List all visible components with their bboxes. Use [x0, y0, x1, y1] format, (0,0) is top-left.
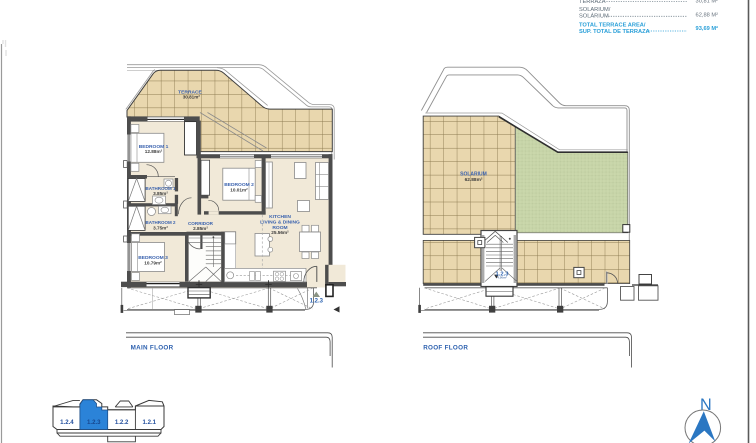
- svg-text:3.85m²: 3.85m²: [153, 191, 168, 196]
- svg-text:62,88 M²: 62,88 M²: [696, 13, 719, 19]
- svg-text:1.2.3: 1.2.3: [87, 419, 101, 426]
- svg-text:1.2.2: 1.2.2: [115, 419, 129, 426]
- svg-text:SOLARIUM/: SOLARIUM/: [579, 7, 611, 13]
- svg-text:1.2.1: 1.2.1: [143, 419, 157, 426]
- svg-text:30,81 M²: 30,81 M²: [696, 0, 719, 4]
- svg-text:3.75m²: 3.75m²: [153, 225, 168, 230]
- svg-text:62.88m²: 62.88m²: [465, 177, 483, 183]
- svg-text:SUP. TOTAL DE TERRAZA: SUP. TOTAL DE TERRAZA: [579, 29, 650, 35]
- svg-text:2.85m²: 2.85m²: [193, 226, 208, 231]
- svg-text:SOLÁRIUM: SOLÁRIUM: [579, 12, 609, 19]
- svg-text:30.81m²: 30.81m²: [183, 94, 201, 99]
- svg-text:25.56m²: 25.56m²: [271, 230, 289, 235]
- svg-text:MAIN FLOOR: MAIN FLOOR: [131, 344, 174, 351]
- svg-text:TOTAL TERRACE AREA/: TOTAL TERRACE AREA/: [579, 23, 646, 29]
- svg-text:10.79m²: 10.79m²: [144, 261, 162, 266]
- svg-text:1.2.3: 1.2.3: [310, 298, 324, 304]
- svg-text:10.01m²: 10.01m²: [230, 188, 248, 193]
- svg-text:1.2.4: 1.2.4: [60, 419, 74, 426]
- svg-text:4.50m²: 4.50m²: [497, 276, 507, 280]
- svg-text:93,69 M²: 93,69 M²: [696, 25, 719, 32]
- svg-text:12.88m²: 12.88m²: [145, 149, 163, 154]
- svg-text:TERRAZA: TERRAZA: [579, 0, 606, 5]
- svg-text:LIVING & DINING: LIVING & DINING: [260, 219, 300, 225]
- svg-text:ROOF FLOOR: ROOF FLOOR: [423, 344, 468, 351]
- svg-text:KITCHEN: KITCHEN: [269, 214, 291, 220]
- svg-text:SOLARIUM: SOLARIUM: [460, 172, 487, 178]
